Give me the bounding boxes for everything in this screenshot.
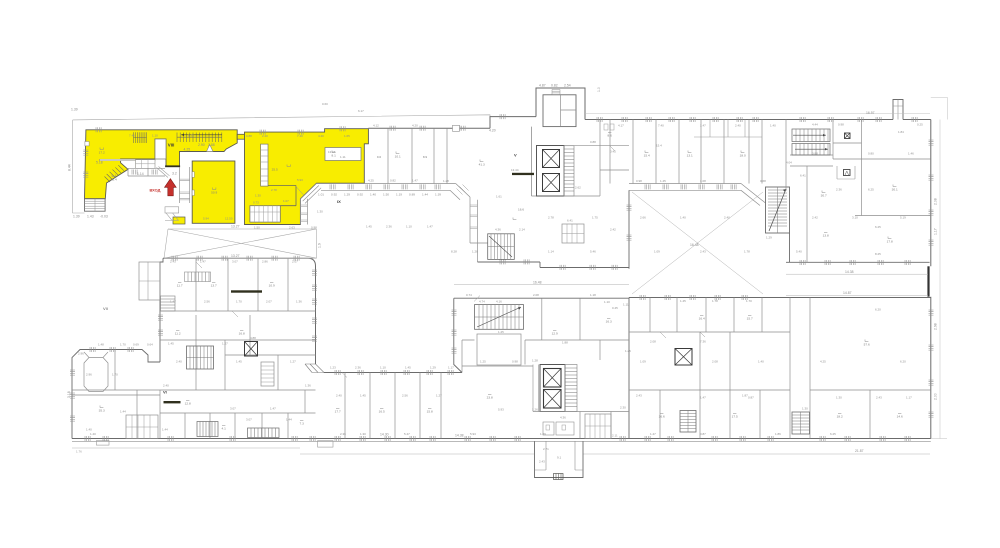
svg-text:1.40: 1.40 bbox=[770, 124, 776, 128]
svg-text:2.71: 2.71 bbox=[543, 447, 549, 451]
svg-text:16.6: 16.6 bbox=[659, 415, 665, 419]
svg-text:16.5: 16.5 bbox=[379, 410, 385, 414]
svg-text:2.90: 2.90 bbox=[198, 143, 205, 147]
svg-text:2.40: 2.40 bbox=[735, 124, 741, 128]
svg-text:5.47: 5.47 bbox=[404, 432, 410, 436]
svg-text:2.07: 2.07 bbox=[266, 300, 272, 304]
svg-text:12.4: 12.4 bbox=[111, 178, 117, 182]
svg-text:1.70: 1.70 bbox=[112, 373, 118, 377]
svg-text:0.82: 0.82 bbox=[551, 83, 558, 87]
svg-text:16.48: 16.48 bbox=[690, 243, 699, 247]
svg-text:18.2: 18.2 bbox=[837, 415, 843, 419]
svg-text:1.0: 1.0 bbox=[597, 87, 601, 92]
svg-text:1.39: 1.39 bbox=[71, 108, 78, 112]
svg-text:4.25: 4.25 bbox=[820, 360, 826, 364]
svg-text:50.9: 50.9 bbox=[211, 191, 217, 195]
svg-text:13.7: 13.7 bbox=[211, 284, 217, 288]
svg-text:13.44: 13.44 bbox=[511, 168, 519, 172]
svg-text:1.45: 1.45 bbox=[680, 299, 686, 303]
svg-text:0.82: 0.82 bbox=[390, 179, 396, 183]
svg-text:1.61: 1.61 bbox=[496, 195, 502, 199]
svg-text:1.28: 1.28 bbox=[472, 250, 478, 254]
svg-text:0.88: 0.88 bbox=[812, 152, 818, 156]
svg-text:16.4: 16.4 bbox=[699, 317, 705, 321]
svg-text:1.28: 1.28 bbox=[443, 179, 449, 183]
svg-text:0.98: 0.98 bbox=[636, 179, 642, 183]
svg-text:4.17: 4.17 bbox=[618, 124, 624, 128]
svg-text:3.07: 3.07 bbox=[232, 260, 238, 264]
svg-text:2.08: 2.08 bbox=[712, 360, 718, 364]
svg-text:8.25: 8.25 bbox=[875, 252, 881, 256]
svg-text:1.10: 1.10 bbox=[604, 300, 610, 304]
svg-text:1.44: 1.44 bbox=[286, 418, 292, 422]
svg-text:13.8: 13.8 bbox=[823, 234, 829, 238]
svg-text:5.40: 5.40 bbox=[796, 250, 802, 254]
svg-text:0.69: 0.69 bbox=[133, 343, 139, 347]
svg-text:1.10: 1.10 bbox=[406, 225, 412, 229]
svg-text:1.29: 1.29 bbox=[766, 236, 772, 240]
svg-text:1.50: 1.50 bbox=[254, 226, 260, 230]
svg-text:1.70: 1.70 bbox=[120, 343, 126, 347]
svg-text:1.17: 1.17 bbox=[934, 228, 938, 235]
svg-text:1.11: 1.11 bbox=[340, 155, 346, 159]
svg-text:7.46: 7.46 bbox=[129, 134, 135, 138]
svg-text:2.88: 2.88 bbox=[208, 143, 215, 147]
svg-text:2.11: 2.11 bbox=[612, 434, 618, 438]
svg-text:10.1: 10.1 bbox=[395, 155, 401, 159]
svg-text:VII: VII bbox=[103, 306, 108, 311]
svg-text:2.43: 2.43 bbox=[636, 394, 642, 398]
svg-text:15.4: 15.4 bbox=[644, 154, 650, 158]
svg-text:2.36: 2.36 bbox=[836, 188, 842, 192]
svg-text:3.18: 3.18 bbox=[67, 391, 71, 398]
svg-text:11.7: 11.7 bbox=[177, 284, 183, 288]
svg-text:16.3: 16.3 bbox=[606, 320, 612, 324]
svg-text:2.40: 2.40 bbox=[336, 394, 342, 398]
svg-text:0.68: 0.68 bbox=[760, 179, 766, 183]
svg-text:0.98: 0.98 bbox=[838, 123, 844, 127]
svg-text:6.20: 6.20 bbox=[900, 360, 906, 364]
svg-text:17.8: 17.8 bbox=[887, 240, 893, 244]
svg-text:1.47: 1.47 bbox=[700, 124, 706, 128]
svg-text:1.47: 1.47 bbox=[412, 179, 418, 183]
svg-text:1.30: 1.30 bbox=[255, 194, 261, 198]
svg-text:17.2: 17.2 bbox=[99, 151, 105, 155]
svg-text:1.40: 1.40 bbox=[680, 216, 686, 220]
svg-text:0.92: 0.92 bbox=[357, 193, 363, 197]
svg-text:1.48: 1.48 bbox=[98, 343, 104, 347]
svg-text:8.44: 8.44 bbox=[68, 164, 72, 171]
svg-text:ВХОД: ВХОД bbox=[150, 187, 161, 192]
svg-text:14.6: 14.6 bbox=[897, 415, 903, 419]
svg-text:5.93: 5.93 bbox=[498, 408, 504, 412]
svg-text:2.43: 2.43 bbox=[170, 260, 176, 264]
svg-text:0.60: 0.60 bbox=[322, 102, 328, 106]
svg-text:1.46: 1.46 bbox=[908, 152, 914, 156]
svg-text:1.45: 1.45 bbox=[366, 225, 372, 229]
svg-text:1.36: 1.36 bbox=[296, 300, 302, 304]
svg-text:5.94: 5.94 bbox=[203, 217, 209, 221]
svg-text:1.75: 1.75 bbox=[592, 216, 598, 220]
svg-text:1.23: 1.23 bbox=[330, 366, 336, 370]
svg-text:16.48: 16.48 bbox=[533, 280, 542, 284]
svg-text:3.07: 3.07 bbox=[246, 418, 252, 422]
svg-text:5.93: 5.93 bbox=[470, 432, 476, 436]
svg-text:4.04: 4.04 bbox=[786, 161, 792, 165]
svg-text:1.76: 1.76 bbox=[76, 450, 82, 454]
svg-text:1.70: 1.70 bbox=[746, 299, 752, 303]
svg-text:8.28: 8.28 bbox=[451, 250, 457, 254]
svg-text:2.56: 2.56 bbox=[402, 394, 408, 398]
svg-text:15.8: 15.8 bbox=[427, 410, 433, 414]
svg-text:1.45: 1.45 bbox=[236, 360, 242, 364]
svg-text:1.47: 1.47 bbox=[200, 260, 206, 264]
svg-text:2.40: 2.40 bbox=[163, 384, 169, 388]
svg-text:2.00: 2.00 bbox=[934, 393, 938, 400]
svg-text:6.41: 6.41 bbox=[567, 219, 573, 223]
svg-text:1.50: 1.50 bbox=[383, 193, 389, 197]
svg-text:1.47: 1.47 bbox=[700, 396, 706, 400]
svg-text:2.96: 2.96 bbox=[78, 352, 84, 356]
svg-text:1.40: 1.40 bbox=[90, 432, 96, 436]
svg-text:2.36: 2.36 bbox=[386, 225, 392, 229]
svg-text:12.8: 12.8 bbox=[185, 402, 191, 406]
svg-text:12.50: 12.50 bbox=[225, 217, 233, 221]
svg-text:1.27: 1.27 bbox=[436, 394, 442, 398]
svg-text:1.47: 1.47 bbox=[170, 300, 176, 304]
svg-text:1.78: 1.78 bbox=[744, 250, 750, 254]
svg-text:15.7: 15.7 bbox=[747, 317, 753, 321]
svg-text:1.47: 1.47 bbox=[427, 225, 433, 229]
svg-text:1.19: 1.19 bbox=[396, 193, 402, 197]
svg-text:4.36: 4.36 bbox=[495, 228, 501, 232]
svg-text:1.36: 1.36 bbox=[305, 384, 311, 388]
svg-text:4.87: 4.87 bbox=[539, 83, 546, 87]
svg-text:0.87: 0.87 bbox=[748, 396, 754, 400]
svg-text:1.30: 1.30 bbox=[360, 432, 366, 436]
svg-text:4.74: 4.74 bbox=[479, 300, 485, 304]
svg-text:6.20: 6.20 bbox=[875, 308, 881, 312]
svg-text:2.08: 2.08 bbox=[533, 293, 539, 297]
svg-text:4.40: 4.40 bbox=[318, 134, 324, 138]
svg-text:16.97: 16.97 bbox=[866, 111, 875, 115]
svg-text:30.7: 30.7 bbox=[821, 194, 827, 198]
svg-text:1.70: 1.70 bbox=[236, 300, 242, 304]
svg-text:14.30: 14.30 bbox=[380, 432, 389, 436]
svg-text:0.64: 0.64 bbox=[147, 343, 153, 347]
svg-text:3.2: 3.2 bbox=[172, 171, 177, 175]
svg-text:7.3: 7.3 bbox=[300, 422, 305, 426]
svg-text:-0.03: -0.03 bbox=[100, 214, 108, 218]
svg-text:4.20: 4.20 bbox=[412, 124, 418, 128]
svg-text:17.5: 17.5 bbox=[732, 415, 738, 419]
svg-text:1.28: 1.28 bbox=[532, 359, 538, 363]
svg-text:5.18: 5.18 bbox=[96, 160, 103, 164]
svg-text:2.86: 2.86 bbox=[262, 260, 268, 264]
svg-text:1.9: 1.9 bbox=[318, 243, 322, 248]
svg-text:13.27: 13.27 bbox=[231, 254, 240, 258]
svg-text:1.47: 1.47 bbox=[650, 432, 656, 436]
svg-text:2.07: 2.07 bbox=[292, 260, 298, 264]
svg-text:5.19: 5.19 bbox=[900, 216, 906, 220]
svg-text:1.30: 1.30 bbox=[802, 407, 808, 411]
svg-text:8.1: 8.1 bbox=[332, 154, 337, 158]
svg-text:1.17: 1.17 bbox=[906, 396, 912, 400]
svg-text:1.40: 1.40 bbox=[370, 193, 376, 197]
svg-text:0.45: 0.45 bbox=[610, 150, 616, 154]
svg-text:2.43: 2.43 bbox=[700, 250, 706, 254]
svg-text:2.14: 2.14 bbox=[519, 228, 525, 232]
svg-text:1.25: 1.25 bbox=[625, 349, 631, 353]
svg-text:4.25: 4.25 bbox=[368, 179, 374, 183]
svg-text:23.8: 23.8 bbox=[487, 396, 493, 400]
svg-text:6.41: 6.41 bbox=[800, 174, 806, 178]
svg-text:2.30: 2.30 bbox=[620, 406, 626, 410]
svg-text:1.78: 1.78 bbox=[712, 299, 718, 303]
svg-text:6.17: 6.17 bbox=[358, 109, 364, 113]
svg-text:4.36: 4.36 bbox=[560, 416, 566, 420]
svg-text:4.20: 4.20 bbox=[489, 129, 496, 133]
svg-text:1.18: 1.18 bbox=[590, 293, 596, 297]
svg-text:18.0: 18.0 bbox=[740, 154, 746, 158]
svg-text:1.39: 1.39 bbox=[435, 193, 441, 197]
svg-text:11.2: 11.2 bbox=[175, 332, 181, 336]
svg-text:13.27: 13.27 bbox=[231, 225, 240, 229]
svg-text:5.93: 5.93 bbox=[297, 178, 303, 182]
svg-text:1.44: 1.44 bbox=[120, 410, 126, 414]
svg-text:0.98: 0.98 bbox=[311, 226, 317, 230]
svg-text:1.40: 1.40 bbox=[758, 360, 764, 364]
svg-text:0.88: 0.88 bbox=[590, 140, 596, 144]
svg-text:2.78: 2.78 bbox=[548, 216, 554, 220]
svg-text:2.98: 2.98 bbox=[934, 323, 938, 330]
svg-text:1.30: 1.30 bbox=[836, 396, 842, 400]
svg-text:2.63: 2.63 bbox=[289, 226, 295, 230]
svg-text:1.88: 1.88 bbox=[562, 341, 568, 345]
svg-text:1.29: 1.29 bbox=[344, 193, 350, 197]
svg-text:4.1: 4.1 bbox=[222, 427, 227, 431]
svg-text:0.87: 0.87 bbox=[700, 432, 706, 436]
svg-text:1.44: 1.44 bbox=[422, 193, 428, 197]
svg-text:7.40: 7.40 bbox=[658, 124, 664, 128]
svg-text:17.7: 17.7 bbox=[335, 410, 341, 414]
svg-text:2.36: 2.36 bbox=[355, 366, 361, 370]
svg-text:1.84: 1.84 bbox=[898, 130, 904, 134]
svg-text:1.14: 1.14 bbox=[548, 250, 554, 254]
svg-text:57.6: 57.6 bbox=[864, 343, 870, 347]
svg-text:3.07: 3.07 bbox=[230, 407, 236, 411]
svg-text:1.45: 1.45 bbox=[405, 366, 411, 370]
svg-text:1.10: 1.10 bbox=[380, 366, 386, 370]
svg-text:2.62: 2.62 bbox=[575, 186, 581, 190]
svg-text:8.6: 8.6 bbox=[608, 134, 613, 138]
svg-text:0.74: 0.74 bbox=[466, 293, 472, 297]
svg-text:9.6: 9.6 bbox=[377, 155, 382, 159]
svg-text:0.89: 0.89 bbox=[409, 193, 415, 197]
svg-text:8.9: 8.9 bbox=[423, 155, 428, 159]
svg-text:1.43: 1.43 bbox=[87, 214, 94, 218]
svg-text:1.27: 1.27 bbox=[290, 360, 296, 364]
svg-text:5.46: 5.46 bbox=[590, 250, 596, 254]
svg-text:1.17: 1.17 bbox=[448, 366, 454, 370]
svg-text:2.56: 2.56 bbox=[204, 300, 210, 304]
svg-text:6.25: 6.25 bbox=[830, 432, 836, 436]
svg-text:4.16: 4.16 bbox=[496, 300, 502, 304]
svg-text:2.66: 2.66 bbox=[640, 216, 646, 220]
svg-text:VI: VI bbox=[163, 390, 167, 395]
svg-text:1.29: 1.29 bbox=[430, 366, 436, 370]
svg-text:2.40: 2.40 bbox=[724, 216, 730, 220]
svg-text:1.11: 1.11 bbox=[623, 303, 629, 307]
svg-text:1.07: 1.07 bbox=[283, 199, 289, 203]
svg-text:14.38: 14.38 bbox=[845, 270, 854, 274]
svg-text:1.09: 1.09 bbox=[640, 360, 646, 364]
svg-text:1.45: 1.45 bbox=[168, 342, 174, 346]
svg-text:1.14: 1.14 bbox=[137, 172, 144, 176]
svg-text:15.4: 15.4 bbox=[656, 144, 662, 148]
svg-text:1.45: 1.45 bbox=[660, 179, 666, 183]
svg-text:1.30: 1.30 bbox=[317, 210, 323, 214]
svg-text:V: V bbox=[514, 153, 517, 158]
svg-text:0.45: 0.45 bbox=[612, 306, 618, 310]
svg-text:2.08: 2.08 bbox=[934, 198, 938, 205]
svg-text:7.36: 7.36 bbox=[700, 340, 706, 344]
svg-text:1.44: 1.44 bbox=[162, 428, 168, 432]
svg-text:14.87: 14.87 bbox=[843, 291, 852, 295]
svg-text:0.80: 0.80 bbox=[868, 152, 874, 156]
svg-text:3.10: 3.10 bbox=[852, 216, 858, 220]
svg-text:VIII: VIII bbox=[168, 143, 175, 148]
svg-text:2.54: 2.54 bbox=[564, 83, 571, 87]
svg-text:2.36: 2.36 bbox=[340, 432, 346, 436]
svg-text:2.43: 2.43 bbox=[539, 460, 545, 464]
svg-text:30.1: 30.1 bbox=[892, 188, 898, 192]
svg-text:1.40: 1.40 bbox=[86, 428, 92, 432]
svg-text:4.25: 4.25 bbox=[184, 147, 191, 151]
svg-text:IX: IX bbox=[337, 199, 341, 204]
svg-text:1.26: 1.26 bbox=[532, 408, 538, 412]
svg-text:0.73: 0.73 bbox=[253, 201, 259, 205]
svg-text:1.29: 1.29 bbox=[540, 432, 546, 436]
svg-text:1.65: 1.65 bbox=[344, 134, 350, 138]
svg-text:1.09: 1.09 bbox=[654, 250, 660, 254]
svg-text:0.25: 0.25 bbox=[917, 123, 923, 127]
svg-text:2.96: 2.96 bbox=[86, 373, 92, 377]
svg-text:4.88: 4.88 bbox=[250, 336, 256, 340]
svg-text:1.25: 1.25 bbox=[480, 360, 486, 364]
svg-text:2.40: 2.40 bbox=[176, 360, 182, 364]
svg-text:1.01: 1.01 bbox=[318, 193, 324, 197]
svg-text:2.20: 2.20 bbox=[262, 134, 268, 138]
svg-text:1.08: 1.08 bbox=[700, 179, 706, 183]
svg-text:0.98: 0.98 bbox=[512, 360, 518, 364]
svg-text:2.78: 2.78 bbox=[271, 188, 277, 192]
svg-text:1.27: 1.27 bbox=[222, 342, 228, 346]
svg-text:10.9: 10.9 bbox=[269, 284, 275, 288]
svg-text:1.47: 1.47 bbox=[270, 407, 276, 411]
svg-text:16.8: 16.8 bbox=[239, 332, 245, 336]
svg-text:1.25: 1.25 bbox=[498, 330, 504, 334]
svg-text:2.43: 2.43 bbox=[876, 396, 882, 400]
svg-text:6.75: 6.75 bbox=[188, 134, 194, 138]
svg-text:35.3: 35.3 bbox=[99, 409, 105, 413]
svg-text:1.10: 1.10 bbox=[152, 134, 158, 138]
svg-text:7.40: 7.40 bbox=[297, 134, 303, 138]
svg-text:0.88: 0.88 bbox=[246, 134, 252, 138]
svg-text:2.42: 2.42 bbox=[812, 216, 818, 220]
svg-text:2.42: 2.42 bbox=[610, 228, 616, 232]
svg-text:41.3: 41.3 bbox=[479, 163, 485, 167]
svg-text:2.08: 2.08 bbox=[650, 340, 656, 344]
svg-text:21.87: 21.87 bbox=[855, 449, 864, 453]
svg-text:1.39: 1.39 bbox=[73, 214, 80, 218]
svg-text:25.5: 25.5 bbox=[272, 168, 278, 172]
svg-text:9.1: 9.1 bbox=[557, 456, 562, 460]
svg-text:13.1: 13.1 bbox=[687, 154, 693, 158]
svg-text:16.6: 16.6 bbox=[518, 208, 524, 212]
svg-text:4.44: 4.44 bbox=[812, 123, 818, 127]
svg-text:6.25: 6.25 bbox=[868, 188, 874, 192]
svg-text:1.86: 1.86 bbox=[775, 432, 781, 436]
svg-text:6.25: 6.25 bbox=[875, 225, 881, 229]
svg-text:14.38: 14.38 bbox=[455, 434, 464, 438]
svg-text:4.12: 4.12 bbox=[373, 124, 379, 128]
svg-text:0.92: 0.92 bbox=[331, 193, 337, 197]
svg-text:1.45: 1.45 bbox=[360, 394, 366, 398]
svg-text:12.9: 12.9 bbox=[552, 332, 558, 336]
